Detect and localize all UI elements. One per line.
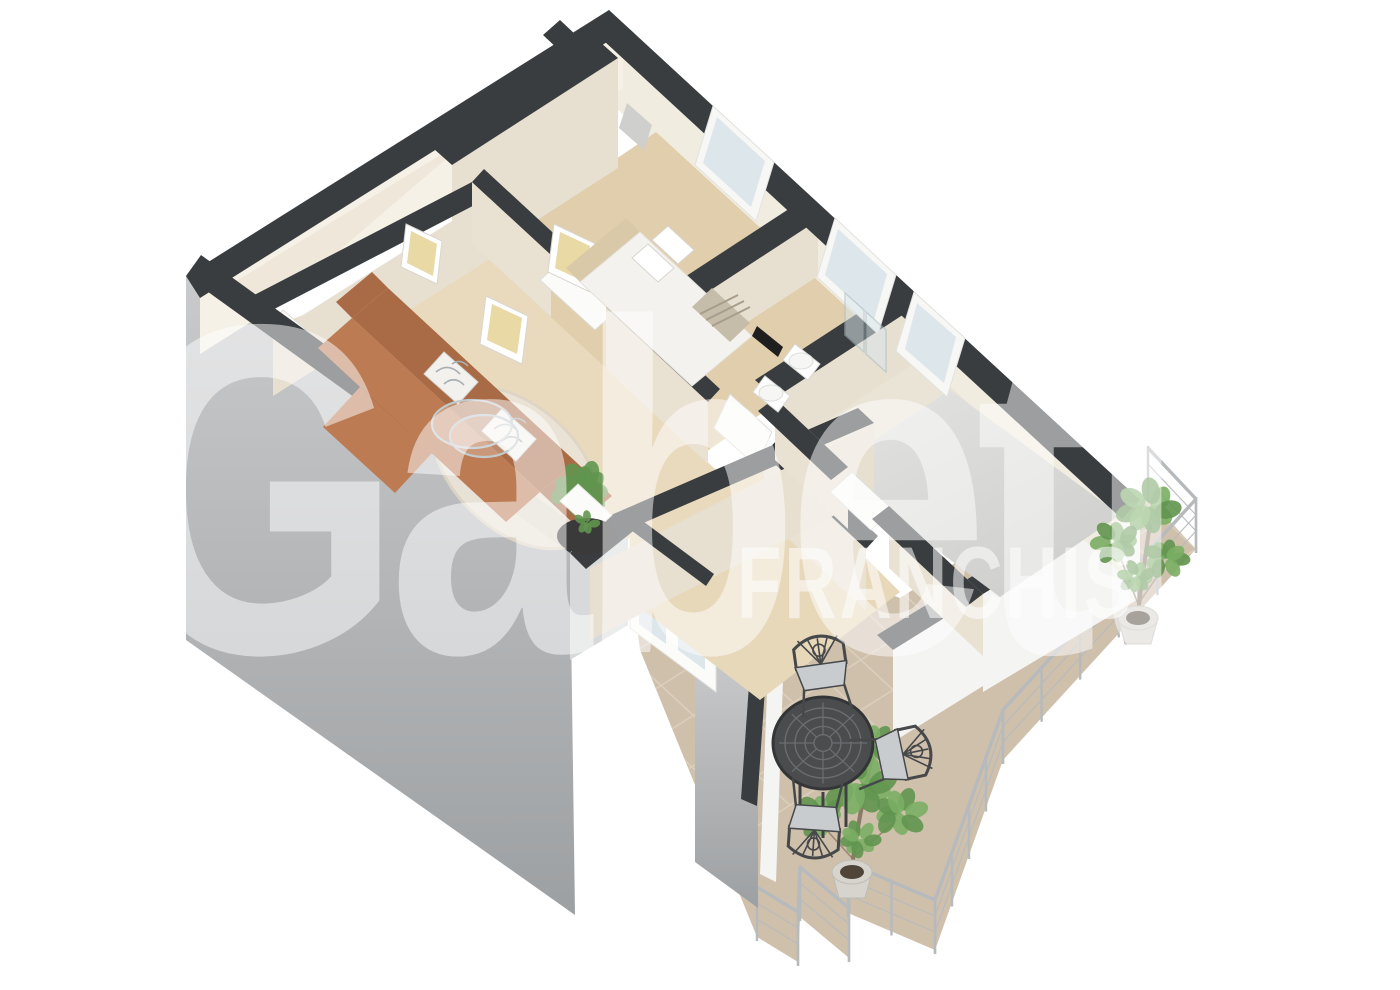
floor-plan-canvas: Gabetti FRANCHIS	[0, 0, 1400, 990]
floor-plan-render: Gabetti FRANCHIS	[0, 0, 1400, 990]
chair-seat	[789, 804, 843, 832]
watermark: Gabetti FRANCHIS	[118, 227, 1278, 752]
plant-pot-soil	[840, 865, 864, 879]
watermark-brand-text: Gabetti	[118, 227, 1278, 752]
watermark-franchise-text: FRANCHIS	[737, 526, 1135, 640]
